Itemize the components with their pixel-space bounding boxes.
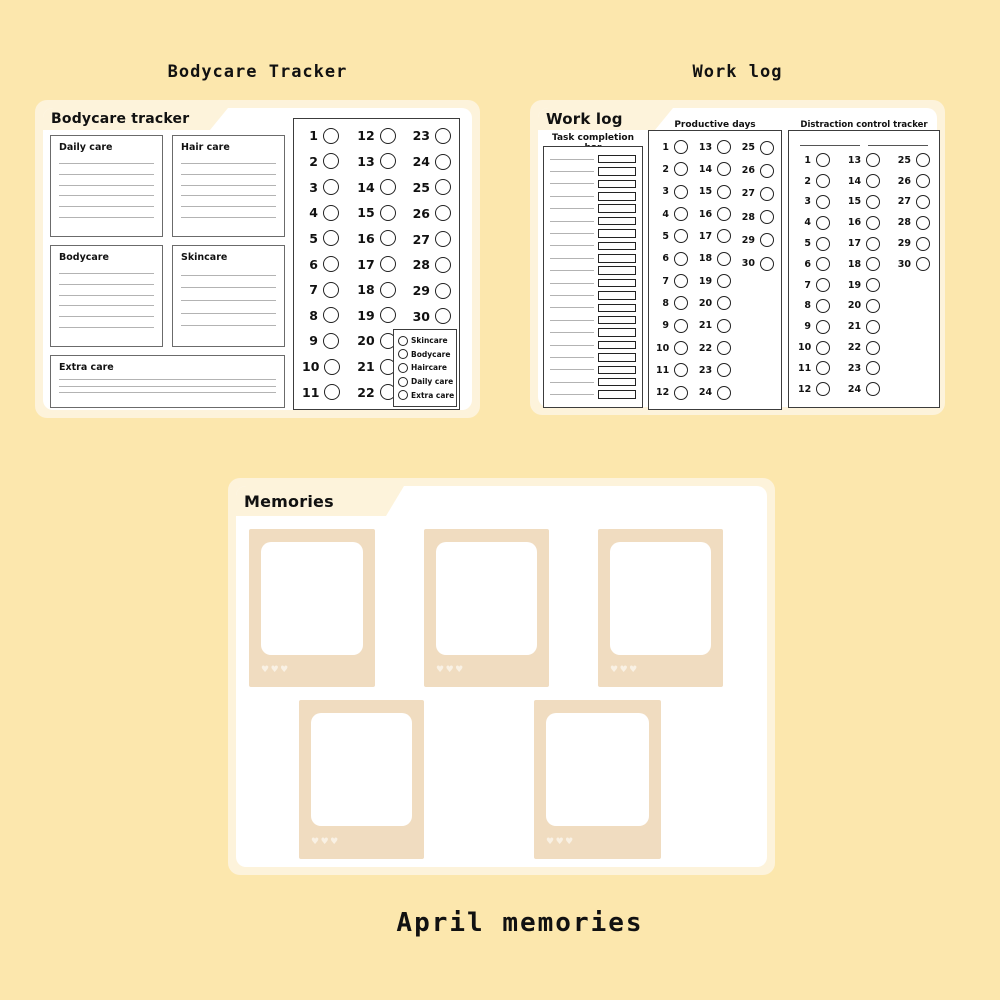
photo-placeholder[interactable] bbox=[436, 542, 537, 655]
day-checkbox-circle[interactable] bbox=[760, 210, 774, 224]
day-row: 14 bbox=[848, 171, 880, 192]
day-checkbox-circle[interactable] bbox=[816, 361, 830, 375]
day-row: 6 bbox=[798, 254, 830, 275]
day-number: 10 bbox=[302, 359, 319, 374]
day-number: 22 bbox=[699, 343, 712, 354]
extra-care-label: Extra care bbox=[59, 362, 276, 373]
day-checkbox-circle[interactable] bbox=[435, 205, 451, 221]
task-progress-bar[interactable] bbox=[598, 266, 636, 275]
memories-card: Memories ♥♥♥♥♥♥♥♥♥♥♥♥♥♥♥ bbox=[228, 478, 775, 875]
day-checkbox-circle[interactable] bbox=[674, 296, 688, 310]
task-row bbox=[550, 304, 636, 313]
day-column: 123456789101112 bbox=[656, 136, 688, 404]
day-row: 29 bbox=[413, 278, 451, 304]
day-row: 18 bbox=[357, 277, 395, 303]
day-number: 29 bbox=[898, 238, 911, 249]
day-checkbox-circle[interactable] bbox=[380, 153, 396, 169]
day-row: 2 bbox=[656, 158, 688, 180]
day-row: 20 bbox=[699, 292, 731, 314]
task-row bbox=[550, 291, 636, 300]
day-row: 27 bbox=[413, 226, 451, 252]
legend-item: Extra care bbox=[398, 390, 452, 400]
task-progress-bar[interactable] bbox=[598, 155, 636, 164]
day-checkbox-circle[interactable] bbox=[760, 164, 774, 178]
day-checkbox-circle[interactable] bbox=[674, 274, 688, 288]
day-number: 21 bbox=[357, 359, 374, 374]
day-checkbox-circle[interactable] bbox=[717, 341, 731, 355]
hair-care-box: Hair care bbox=[172, 135, 285, 237]
day-checkbox-circle[interactable] bbox=[323, 205, 339, 221]
day-number: 16 bbox=[848, 217, 861, 228]
day-number: 8 bbox=[302, 308, 318, 323]
worklog-card: Work log Task completion bar Productive … bbox=[530, 100, 945, 415]
task-write-in-line bbox=[550, 183, 594, 184]
day-row: 17 bbox=[357, 251, 395, 277]
day-number: 24 bbox=[699, 387, 712, 398]
worklog-page-heading: Work log bbox=[530, 62, 945, 82]
day-checkbox-circle[interactable] bbox=[760, 187, 774, 201]
day-checkbox-circle[interactable] bbox=[435, 179, 451, 195]
day-checkbox-circle[interactable] bbox=[717, 363, 731, 377]
day-checkbox-circle[interactable] bbox=[816, 320, 830, 334]
legend-checkbox-circle[interactable] bbox=[398, 377, 408, 387]
day-number: 7 bbox=[302, 282, 318, 297]
day-checkbox-circle[interactable] bbox=[674, 363, 688, 377]
day-checkbox-circle[interactable] bbox=[866, 299, 880, 313]
day-row: 9 bbox=[656, 315, 688, 337]
ruled-line bbox=[181, 195, 276, 196]
task-progress-bar[interactable] bbox=[598, 353, 636, 362]
day-number: 22 bbox=[357, 385, 374, 400]
day-row: 6 bbox=[656, 248, 688, 270]
legend-checkbox-circle[interactable] bbox=[398, 390, 408, 400]
day-row: 21 bbox=[357, 354, 395, 380]
day-number: 1 bbox=[798, 155, 811, 166]
day-row: 15 bbox=[699, 181, 731, 203]
day-checkbox-circle[interactable] bbox=[380, 179, 396, 195]
day-checkbox-circle[interactable] bbox=[323, 256, 339, 272]
ruled-line bbox=[59, 392, 276, 393]
task-row bbox=[550, 192, 636, 201]
day-number: 13 bbox=[357, 154, 374, 169]
task-row bbox=[550, 180, 636, 189]
day-checkbox-circle[interactable] bbox=[323, 333, 339, 349]
write-in-line bbox=[800, 145, 860, 146]
ruled-line bbox=[59, 379, 276, 380]
task-row bbox=[550, 254, 636, 263]
day-checkbox-circle[interactable] bbox=[866, 153, 880, 167]
task-write-in-line bbox=[550, 208, 594, 209]
day-checkbox-circle[interactable] bbox=[323, 179, 339, 195]
day-number: 6 bbox=[302, 257, 318, 272]
day-row: 13 bbox=[848, 150, 880, 171]
legend-checkbox-circle[interactable] bbox=[398, 349, 408, 359]
day-row: 5 bbox=[798, 233, 830, 254]
day-number: 1 bbox=[656, 142, 669, 153]
bodycare-tracker-card: Bodycare tracker Daily care Hair care Bo… bbox=[35, 100, 480, 418]
ruled-line bbox=[59, 174, 154, 175]
photo-frame[interactable]: ♥♥♥ bbox=[424, 529, 549, 687]
day-checkbox-circle[interactable] bbox=[816, 257, 830, 271]
day-checkbox-circle[interactable] bbox=[717, 274, 731, 288]
task-row bbox=[550, 341, 636, 350]
day-row: 4 bbox=[798, 212, 830, 233]
skincare-lines bbox=[181, 263, 276, 338]
day-checkbox-circle[interactable] bbox=[435, 154, 451, 170]
day-number: 27 bbox=[898, 196, 911, 207]
day-checkbox-circle[interactable] bbox=[816, 195, 830, 209]
task-progress-bar[interactable] bbox=[598, 217, 636, 226]
day-column: 131415161718192021222324 bbox=[848, 150, 880, 400]
ruled-line bbox=[59, 305, 154, 306]
day-checkbox-circle[interactable] bbox=[760, 233, 774, 247]
ruled-line bbox=[181, 217, 276, 218]
bodycare-label: Bodycare bbox=[59, 252, 154, 263]
day-checkbox-circle[interactable] bbox=[717, 296, 731, 310]
day-row: 7 bbox=[798, 275, 830, 296]
day-number: 27 bbox=[742, 188, 755, 199]
day-number: 25 bbox=[413, 180, 430, 195]
day-number: 17 bbox=[699, 231, 712, 242]
day-row: 28 bbox=[413, 252, 451, 278]
memories-card-title: Memories bbox=[244, 492, 334, 511]
day-number: 28 bbox=[898, 217, 911, 228]
task-progress-bar[interactable] bbox=[598, 192, 636, 201]
day-checkbox-circle[interactable] bbox=[674, 162, 688, 176]
day-checkbox-circle[interactable] bbox=[380, 307, 396, 323]
day-number: 30 bbox=[742, 258, 755, 269]
day-checkbox-circle[interactable] bbox=[435, 128, 451, 144]
task-progress-bar[interactable] bbox=[598, 304, 636, 313]
day-checkbox-circle[interactable] bbox=[916, 237, 930, 251]
bodycare-legend-box: SkincareBodycareHaircareDaily careExtra … bbox=[393, 329, 457, 407]
distraction-tracker-box: 1234567891011121314151617181920212223242… bbox=[788, 130, 940, 408]
day-number: 7 bbox=[798, 280, 811, 291]
legend-checkbox-circle[interactable] bbox=[398, 336, 408, 346]
day-row: 23 bbox=[699, 359, 731, 381]
day-row: 1 bbox=[656, 136, 688, 158]
hearts-icon: ♥♥♥ bbox=[436, 665, 465, 675]
bodycare-card-tab: Bodycare tracker bbox=[43, 108, 228, 130]
day-checkbox-circle[interactable] bbox=[816, 216, 830, 230]
day-checkbox-circle[interactable] bbox=[674, 229, 688, 243]
day-number: 25 bbox=[742, 142, 755, 153]
memories-card-tab: Memories bbox=[236, 486, 404, 516]
day-number: 9 bbox=[798, 321, 811, 332]
day-number: 9 bbox=[656, 320, 669, 331]
day-checkbox-circle[interactable] bbox=[866, 237, 880, 251]
day-number: 5 bbox=[656, 231, 669, 242]
day-checkbox-circle[interactable] bbox=[435, 257, 451, 273]
photo-frame[interactable]: ♥♥♥ bbox=[299, 700, 424, 859]
day-checkbox-circle[interactable] bbox=[380, 256, 396, 272]
day-checkbox-circle[interactable] bbox=[674, 386, 688, 400]
day-row: 3 bbox=[656, 181, 688, 203]
day-number: 19 bbox=[699, 276, 712, 287]
ruled-line bbox=[59, 316, 154, 317]
day-number: 28 bbox=[742, 212, 755, 223]
day-number: 8 bbox=[656, 298, 669, 309]
day-number: 24 bbox=[848, 384, 861, 395]
task-progress-bar[interactable] bbox=[598, 328, 636, 337]
day-checkbox-circle[interactable] bbox=[380, 282, 396, 298]
day-checkbox-circle[interactable] bbox=[674, 319, 688, 333]
day-number: 11 bbox=[656, 365, 669, 376]
day-checkbox-circle[interactable] bbox=[816, 153, 830, 167]
task-row bbox=[550, 204, 636, 213]
legend-label: Bodycare bbox=[411, 350, 450, 359]
day-checkbox-circle[interactable] bbox=[323, 307, 339, 323]
day-checkbox-circle[interactable] bbox=[323, 230, 339, 246]
day-checkbox-circle[interactable] bbox=[916, 216, 930, 230]
day-number: 16 bbox=[357, 231, 374, 246]
day-checkbox-circle[interactable] bbox=[717, 207, 731, 221]
day-row: 9 bbox=[798, 316, 830, 337]
day-column: 252627282930 bbox=[898, 150, 930, 400]
legend-item: Bodycare bbox=[398, 349, 452, 359]
day-number: 27 bbox=[413, 232, 430, 247]
day-number: 26 bbox=[898, 176, 911, 187]
day-number: 22 bbox=[848, 342, 861, 353]
task-progress-bar[interactable] bbox=[598, 180, 636, 189]
day-checkbox-circle[interactable] bbox=[916, 195, 930, 209]
day-checkbox-circle[interactable] bbox=[674, 207, 688, 221]
day-number: 6 bbox=[656, 253, 669, 264]
day-checkbox-circle[interactable] bbox=[674, 341, 688, 355]
day-number: 4 bbox=[302, 205, 318, 220]
photo-frame[interactable]: ♥♥♥ bbox=[249, 529, 375, 687]
daily-care-box: Daily care bbox=[50, 135, 163, 237]
day-row: 18 bbox=[699, 248, 731, 270]
task-progress-bar[interactable] bbox=[598, 366, 636, 375]
day-row: 30 bbox=[413, 304, 451, 330]
ruled-line bbox=[59, 386, 276, 387]
task-progress-bar[interactable] bbox=[598, 341, 636, 350]
task-progress-bar[interactable] bbox=[598, 316, 636, 325]
hair-care-label: Hair care bbox=[181, 142, 276, 153]
legend-checkbox-circle[interactable] bbox=[398, 363, 408, 373]
day-number: 7 bbox=[656, 276, 669, 287]
day-number: 26 bbox=[413, 206, 430, 221]
day-checkbox-circle[interactable] bbox=[916, 153, 930, 167]
task-progress-bar[interactable] bbox=[598, 291, 636, 300]
task-row bbox=[550, 353, 636, 362]
day-checkbox-circle[interactable] bbox=[323, 128, 339, 144]
day-checkbox-circle[interactable] bbox=[435, 308, 451, 324]
ruled-line bbox=[59, 273, 154, 274]
day-checkbox-circle[interactable] bbox=[717, 319, 731, 333]
legend-item: Haircare bbox=[398, 363, 452, 373]
task-progress-bar[interactable] bbox=[598, 254, 636, 263]
task-write-in-line bbox=[550, 283, 594, 284]
task-row bbox=[550, 155, 636, 164]
task-progress-bar[interactable] bbox=[598, 279, 636, 288]
task-write-in-line bbox=[550, 332, 594, 333]
day-checkbox-circle[interactable] bbox=[916, 174, 930, 188]
task-write-in-line bbox=[550, 171, 594, 172]
day-checkbox-circle[interactable] bbox=[717, 252, 731, 266]
day-row: 25 bbox=[742, 136, 774, 159]
day-checkbox-circle[interactable] bbox=[323, 153, 339, 169]
day-number: 12 bbox=[798, 384, 811, 395]
day-checkbox-circle[interactable] bbox=[760, 141, 774, 155]
day-row: 7 bbox=[302, 277, 340, 303]
day-number: 10 bbox=[656, 343, 669, 354]
day-number: 12 bbox=[357, 128, 374, 143]
day-column: 131415161718192021222324 bbox=[699, 136, 731, 404]
day-checkbox-circle[interactable] bbox=[717, 185, 731, 199]
april-memories-heading: April memories bbox=[40, 908, 1000, 938]
day-checkbox-circle[interactable] bbox=[866, 361, 880, 375]
day-checkbox-circle[interactable] bbox=[717, 386, 731, 400]
ruled-line bbox=[181, 185, 276, 186]
day-checkbox-circle[interactable] bbox=[866, 320, 880, 334]
worklog-card-title: Work log bbox=[546, 110, 623, 128]
day-row: 23 bbox=[413, 123, 451, 149]
day-checkbox-circle[interactable] bbox=[816, 237, 830, 251]
bodycare-day-tracker-grid: SkincareBodycareHaircareDaily careExtra … bbox=[293, 118, 460, 410]
daily-care-label: Daily care bbox=[59, 142, 154, 153]
day-row: 17 bbox=[699, 225, 731, 247]
ruled-line bbox=[59, 185, 154, 186]
day-number: 18 bbox=[848, 259, 861, 270]
task-progress-bar[interactable] bbox=[598, 229, 636, 238]
task-row bbox=[550, 279, 636, 288]
day-checkbox-circle[interactable] bbox=[866, 257, 880, 271]
day-number: 15 bbox=[848, 196, 861, 207]
photo-placeholder[interactable] bbox=[261, 542, 363, 655]
day-checkbox-circle[interactable] bbox=[816, 341, 830, 355]
task-progress-bar[interactable] bbox=[598, 378, 636, 387]
task-progress-bar[interactable] bbox=[598, 390, 636, 399]
day-row: 23 bbox=[848, 358, 880, 379]
photo-placeholder[interactable] bbox=[610, 542, 711, 655]
day-checkbox-circle[interactable] bbox=[435, 231, 451, 247]
ruled-line bbox=[181, 163, 276, 164]
day-number: 24 bbox=[413, 154, 430, 169]
day-checkbox-circle[interactable] bbox=[717, 162, 731, 176]
task-progress-bar[interactable] bbox=[598, 204, 636, 213]
task-write-in-line bbox=[550, 369, 594, 370]
day-number: 30 bbox=[413, 309, 430, 324]
day-row: 24 bbox=[699, 382, 731, 404]
daily-care-lines bbox=[59, 153, 154, 228]
day-column: 1234567891011 bbox=[302, 123, 340, 405]
ruled-line bbox=[181, 313, 276, 314]
day-row: 12 bbox=[798, 379, 830, 400]
day-checkbox-circle[interactable] bbox=[674, 252, 688, 266]
ruled-line bbox=[59, 217, 154, 218]
day-number: 2 bbox=[798, 176, 811, 187]
bodycare-box: Bodycare bbox=[50, 245, 163, 347]
day-row: 29 bbox=[742, 229, 774, 252]
day-checkbox-circle[interactable] bbox=[816, 382, 830, 396]
day-row: 9 bbox=[302, 328, 340, 354]
task-write-in-line bbox=[550, 233, 594, 234]
day-checkbox-circle[interactable] bbox=[717, 140, 731, 154]
photo-placeholder[interactable] bbox=[546, 713, 649, 826]
bodycare-page-heading: Bodycare Tracker bbox=[35, 62, 480, 82]
day-checkbox-circle[interactable] bbox=[324, 384, 340, 400]
day-checkbox-circle[interactable] bbox=[816, 174, 830, 188]
task-row bbox=[550, 266, 636, 275]
task-progress-bar[interactable] bbox=[598, 242, 636, 251]
day-column: 1213141516171819202122 bbox=[357, 123, 395, 405]
day-row: 16 bbox=[357, 226, 395, 252]
day-checkbox-circle[interactable] bbox=[380, 128, 396, 144]
skincare-box: Skincare bbox=[172, 245, 285, 347]
day-checkbox-circle[interactable] bbox=[816, 299, 830, 313]
day-checkbox-circle[interactable] bbox=[760, 257, 774, 271]
day-checkbox-circle[interactable] bbox=[866, 195, 880, 209]
legend-label: Daily care bbox=[411, 377, 453, 386]
day-row: 20 bbox=[848, 296, 880, 317]
hair-care-lines bbox=[181, 153, 276, 228]
day-number: 10 bbox=[798, 342, 811, 353]
day-number: 15 bbox=[357, 205, 374, 220]
day-row: 2 bbox=[302, 149, 340, 175]
day-checkbox-circle[interactable] bbox=[435, 283, 451, 299]
day-row: 20 bbox=[357, 328, 395, 354]
task-write-in-line bbox=[550, 357, 594, 358]
day-checkbox-circle[interactable] bbox=[866, 216, 880, 230]
day-row: 22 bbox=[848, 337, 880, 358]
task-progress-bar[interactable] bbox=[598, 167, 636, 176]
photo-frame[interactable]: ♥♥♥ bbox=[534, 700, 661, 859]
day-row: 1 bbox=[798, 150, 830, 171]
hearts-icon: ♥♥♥ bbox=[261, 665, 290, 675]
day-row: 28 bbox=[742, 206, 774, 229]
day-row: 27 bbox=[898, 192, 930, 213]
task-row bbox=[550, 167, 636, 176]
day-number: 2 bbox=[656, 164, 669, 175]
day-checkbox-circle[interactable] bbox=[380, 205, 396, 221]
day-checkbox-circle[interactable] bbox=[816, 278, 830, 292]
day-row: 10 bbox=[798, 337, 830, 358]
task-write-in-line bbox=[550, 345, 594, 346]
day-checkbox-circle[interactable] bbox=[866, 382, 880, 396]
day-row: 10 bbox=[302, 354, 340, 380]
day-checkbox-circle[interactable] bbox=[380, 230, 396, 246]
photo-frame[interactable]: ♥♥♥ bbox=[598, 529, 723, 687]
day-checkbox-circle[interactable] bbox=[717, 229, 731, 243]
day-checkbox-circle[interactable] bbox=[866, 174, 880, 188]
day-checkbox-circle[interactable] bbox=[323, 282, 339, 298]
day-row: 5 bbox=[302, 226, 340, 252]
extra-care-box: Extra care bbox=[50, 355, 285, 408]
day-checkbox-circle[interactable] bbox=[866, 278, 880, 292]
ruled-line bbox=[59, 327, 154, 328]
day-number: 14 bbox=[699, 164, 712, 175]
bodycare-card-title: Bodycare tracker bbox=[51, 111, 189, 127]
day-checkbox-circle[interactable] bbox=[674, 140, 688, 154]
day-checkbox-circle[interactable] bbox=[866, 341, 880, 355]
day-checkbox-circle[interactable] bbox=[916, 257, 930, 271]
day-checkbox-circle[interactable] bbox=[674, 185, 688, 199]
day-number: 2 bbox=[302, 154, 318, 169]
day-checkbox-circle[interactable] bbox=[324, 359, 340, 375]
photo-placeholder[interactable] bbox=[311, 713, 412, 826]
skincare-label: Skincare bbox=[181, 252, 276, 263]
day-number: 14 bbox=[848, 176, 861, 187]
bodycare-lines bbox=[59, 263, 154, 338]
day-row: 15 bbox=[848, 192, 880, 213]
day-number: 14 bbox=[357, 180, 374, 195]
task-write-in-line bbox=[550, 245, 594, 246]
task-row bbox=[550, 217, 636, 226]
ruled-line bbox=[59, 195, 154, 196]
productive-days-title: Productive days bbox=[648, 120, 782, 130]
